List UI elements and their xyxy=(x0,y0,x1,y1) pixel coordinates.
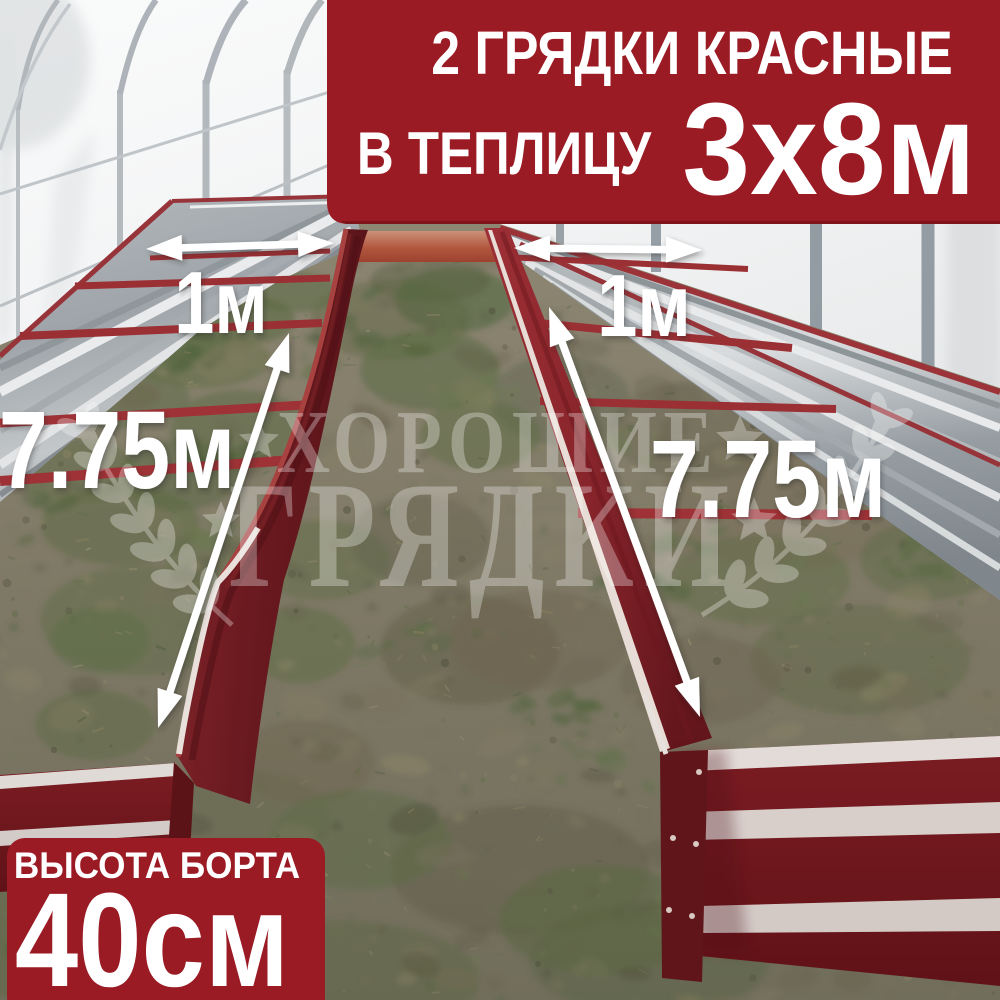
svg-text:40см: 40см xyxy=(15,865,289,1000)
svg-text:В ТЕПЛИЦУ: В ТЕПЛИЦУ xyxy=(357,120,652,187)
svg-text:1м: 1м xyxy=(174,254,268,352)
svg-text:7.75м: 7.75м xyxy=(650,419,886,542)
svg-text:7.75м: 7.75м xyxy=(0,390,235,513)
svg-text:3х8м: 3х8м xyxy=(682,75,975,222)
svg-text:1м: 1м xyxy=(597,257,691,355)
